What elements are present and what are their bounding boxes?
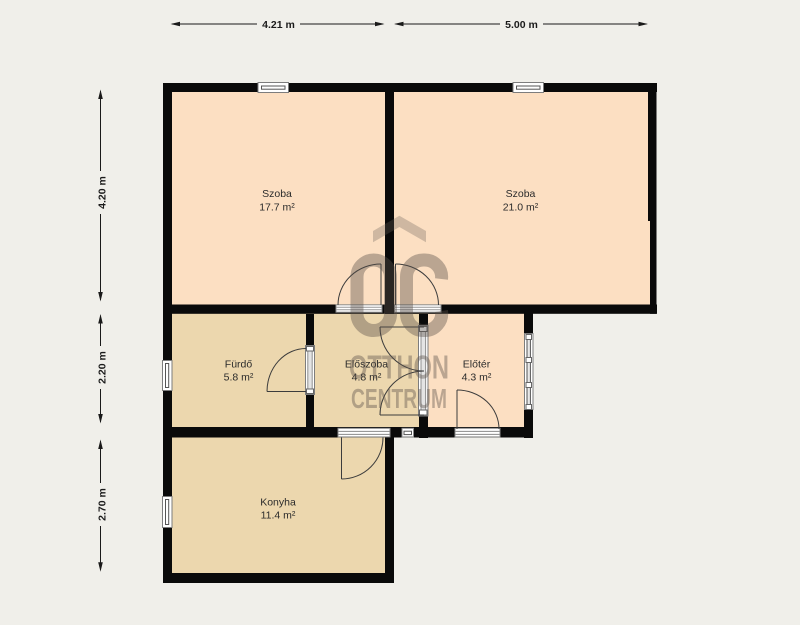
svg-text:2.70 m: 2.70 m bbox=[97, 488, 109, 521]
svg-text:2.20 m: 2.20 m bbox=[97, 351, 109, 384]
svg-text:11.4 m²: 11.4 m² bbox=[261, 510, 296, 522]
svg-text:CENTRUM: CENTRUM bbox=[351, 383, 447, 414]
svg-text:4.3 m²: 4.3 m² bbox=[462, 372, 492, 384]
svg-text:OTTHON: OTTHON bbox=[349, 349, 449, 386]
svg-text:5.8 m²: 5.8 m² bbox=[224, 372, 254, 384]
svg-text:4.21 m: 4.21 m bbox=[262, 19, 295, 31]
svg-text:Szoba: Szoba bbox=[506, 188, 536, 200]
svg-text:Előtér: Előtér bbox=[463, 359, 491, 371]
svg-text:21.0 m²: 21.0 m² bbox=[503, 202, 539, 214]
svg-text:17.7 m²: 17.7 m² bbox=[259, 202, 295, 214]
svg-text:Konyha: Konyha bbox=[260, 497, 296, 509]
svg-text:Fürdő: Fürdő bbox=[225, 359, 253, 371]
svg-text:5.00 m: 5.00 m bbox=[505, 19, 538, 31]
svg-text:Szoba: Szoba bbox=[262, 188, 292, 200]
svg-text:4.20 m: 4.20 m bbox=[97, 176, 109, 209]
